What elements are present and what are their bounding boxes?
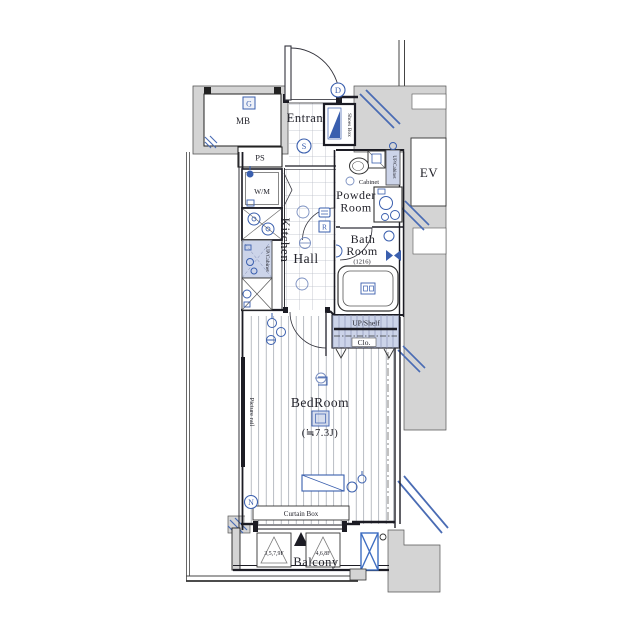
curtain-box: Curtain Box xyxy=(253,506,349,520)
cabinet-label: Cabinet xyxy=(359,179,379,186)
marker-n: N xyxy=(245,496,258,509)
pipe-space: PS xyxy=(238,147,282,167)
up-shelf-label: UP/Shelf xyxy=(352,319,380,328)
balcony-label: Balcony xyxy=(293,555,338,569)
floor-triangle-odd: 3,5,7,9F xyxy=(257,533,291,567)
svg-text:UP/Cabinet: UP/Cabinet xyxy=(391,155,396,179)
shoes-box: Shoes Box xyxy=(324,104,355,145)
bedroom-label: BedRoom xyxy=(291,395,349,410)
toilet-icon xyxy=(350,151,386,174)
washing-machine: W/M xyxy=(242,166,282,208)
ac-outdoor-unit-icon xyxy=(361,533,378,570)
picture-rail-label: Picture rail xyxy=(248,398,255,427)
bath-size-label: (1216) xyxy=(353,259,370,266)
svg-text:3,5,7,9F: 3,5,7,9F xyxy=(264,551,284,557)
faucet-icon xyxy=(247,171,254,178)
marker-r: R xyxy=(319,221,330,232)
bath-label-2: Room xyxy=(346,244,378,258)
intercom-marker xyxy=(319,208,330,217)
marker-s: S xyxy=(297,139,311,153)
svg-text:D: D xyxy=(335,85,341,95)
kitchen-label: Kitchen xyxy=(278,218,293,263)
drain-icon xyxy=(380,534,386,540)
ev-label: EV xyxy=(420,165,438,180)
kitchen-cabinet-label: UP/Cabinet xyxy=(264,246,270,272)
svg-text:R: R xyxy=(322,223,327,232)
balcony: 3,5,7,9F 4,6,8F Balcony xyxy=(257,533,386,580)
meter-box: MB G xyxy=(193,86,288,154)
wm-label: W/M xyxy=(254,187,270,196)
kitchen-stove xyxy=(242,208,282,240)
marker-d: D xyxy=(331,83,345,97)
bath-room: Bath Room (1216) xyxy=(336,231,401,311)
gas-meter-marker: G xyxy=(243,97,255,109)
powder-room: Cabinet UP/Cabinet Powder Room xyxy=(336,143,402,223)
svg-text:G: G xyxy=(246,100,252,109)
outlet-box-icon xyxy=(312,411,329,426)
kitchen-cabinet: UP/Cabinet xyxy=(242,240,272,278)
floor-plan: EV MB G PS xyxy=(0,0,640,640)
ps-label: PS xyxy=(255,153,265,163)
floor-plan-canvas: EV MB G PS xyxy=(0,0,640,640)
svg-text:S: S xyxy=(302,141,307,151)
svg-text:N: N xyxy=(248,498,254,507)
refrigerator-space xyxy=(242,278,272,310)
washbasin-icon xyxy=(374,187,402,222)
svg-text:Curtain Box: Curtain Box xyxy=(284,510,319,518)
hall-label: Hall xyxy=(293,251,318,266)
bathtub-icon xyxy=(338,266,398,311)
powder-room-label-2: Room xyxy=(340,201,372,215)
bedroom-window xyxy=(256,525,344,529)
mb-label: MB xyxy=(236,116,250,126)
valve-icon xyxy=(386,250,401,261)
closet-label: Clo. xyxy=(358,338,371,347)
bedroom-size-label: (≒7.3J) xyxy=(302,428,339,439)
shoes-box-label: Shoes Box xyxy=(346,113,352,137)
